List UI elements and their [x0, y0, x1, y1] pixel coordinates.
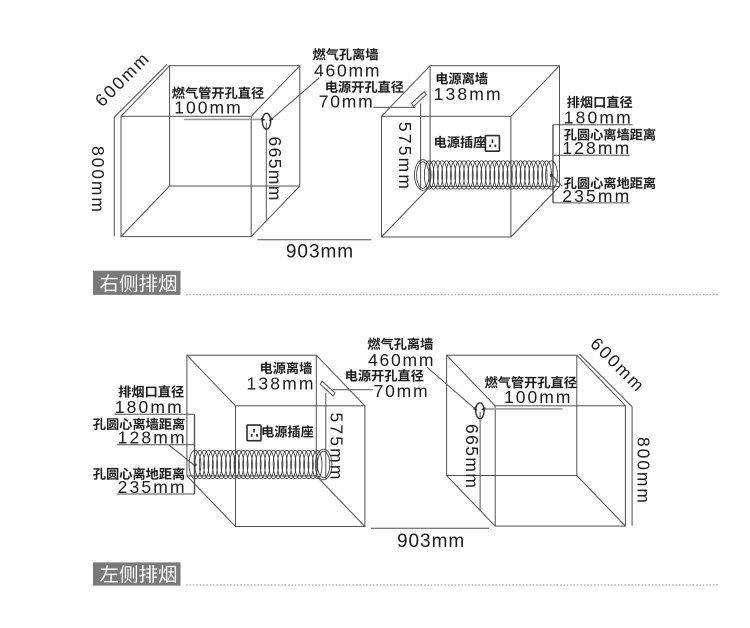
svg-text:665mm: 665mm [462, 424, 482, 488]
svg-text:665mm: 665mm [265, 137, 285, 201]
svg-text:903mm: 903mm [286, 242, 353, 263]
svg-text:70mm: 70mm [319, 91, 373, 111]
svg-text:903mm: 903mm [397, 531, 464, 552]
svg-text:70mm: 70mm [374, 381, 428, 401]
